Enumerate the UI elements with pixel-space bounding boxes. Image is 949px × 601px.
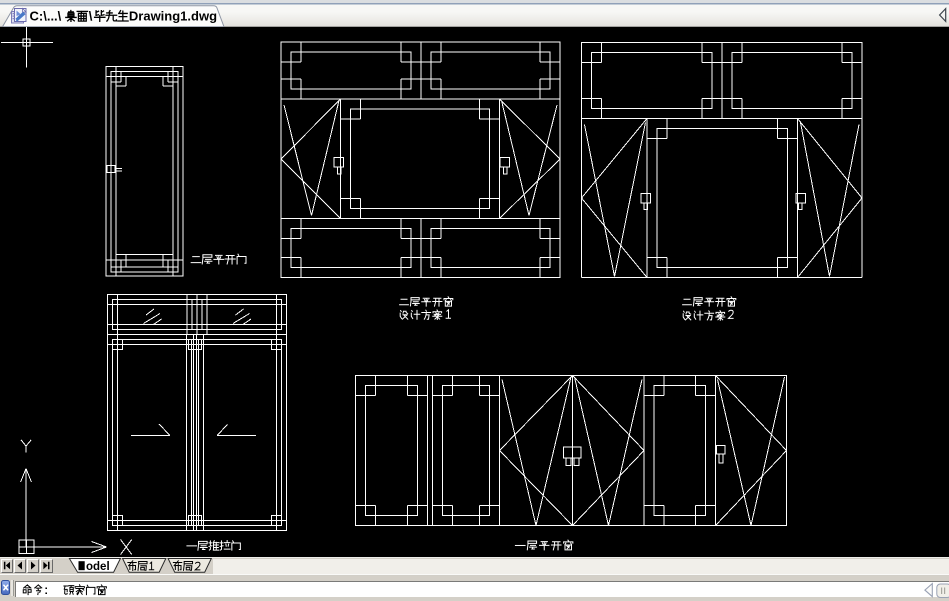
svg-text:odel: odel (86, 561, 110, 573)
svg-text:C:\...\: C:\...\ (30, 9, 62, 24)
svg-text:\: \ (89, 9, 93, 24)
svg-text:Drawing1.dwg: Drawing1.dwg (129, 9, 217, 24)
